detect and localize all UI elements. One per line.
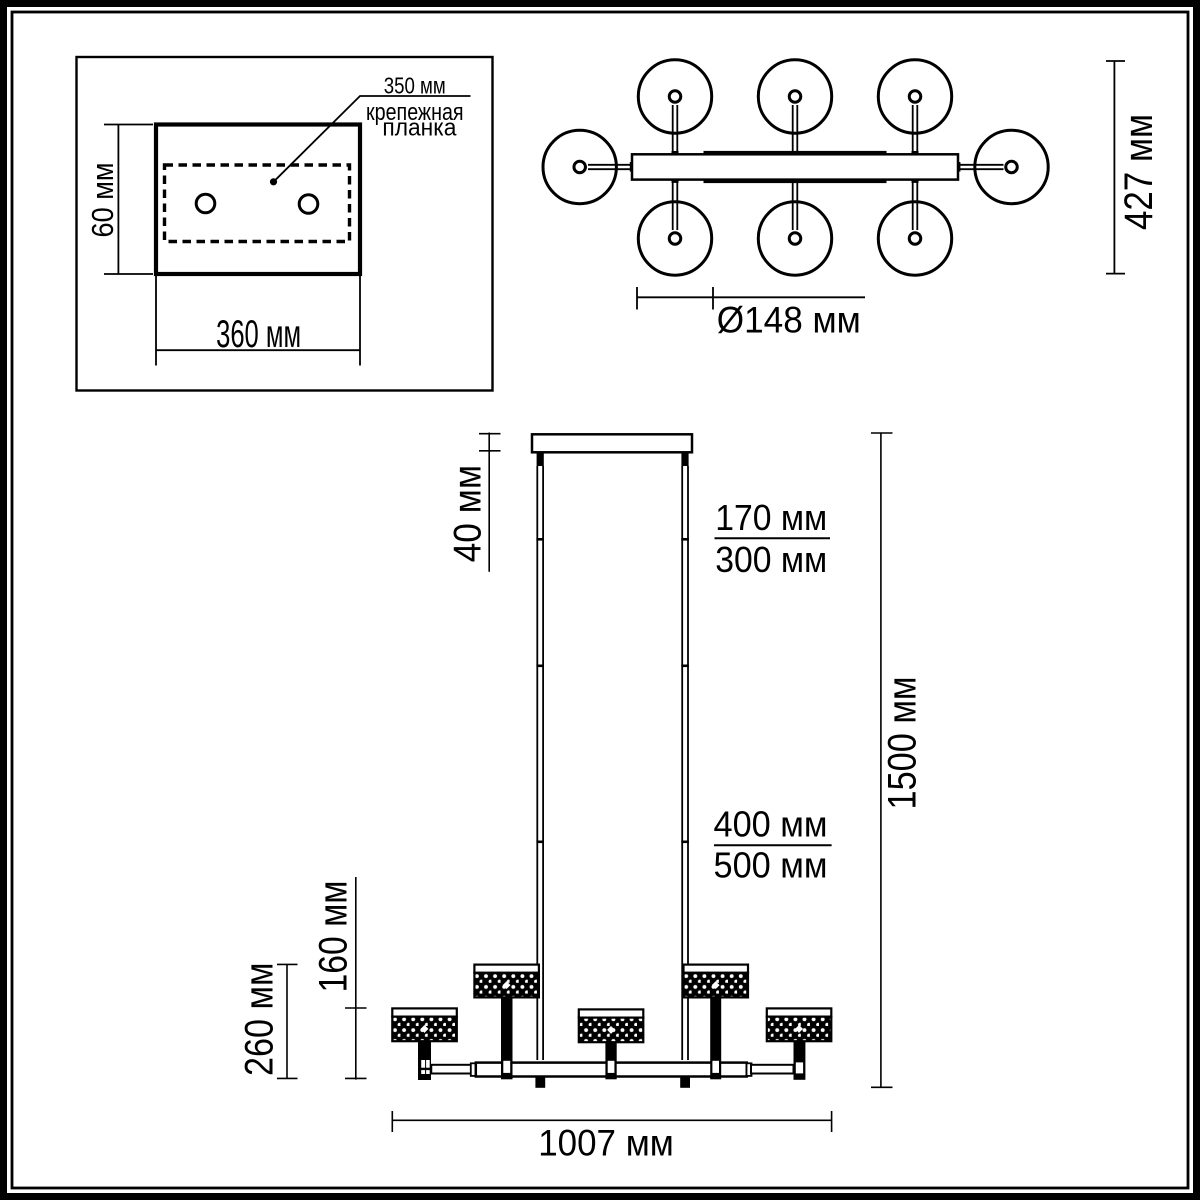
svg-text:360 мм: 360 мм	[216, 313, 301, 356]
svg-text:планка: планка	[382, 115, 457, 142]
svg-text:260 мм: 260 мм	[237, 963, 281, 1077]
svg-text:40 мм: 40 мм	[447, 465, 490, 562]
svg-text:1500 мм: 1500 мм	[881, 677, 925, 810]
svg-text:350 мм: 350 мм	[384, 73, 446, 99]
svg-text:400 мм: 400 мм	[714, 804, 828, 845]
svg-text:Ø148 мм: Ø148 мм	[717, 300, 861, 341]
svg-text:300 мм: 300 мм	[715, 539, 827, 580]
svg-text:500 мм: 500 мм	[714, 845, 828, 886]
svg-text:1007 мм: 1007 мм	[538, 1122, 674, 1163]
svg-text:160 мм: 160 мм	[312, 881, 356, 993]
svg-text:60 мм: 60 мм	[85, 163, 120, 238]
svg-text:427 мм: 427 мм	[1117, 114, 1161, 230]
svg-text:170 мм: 170 мм	[715, 497, 827, 538]
